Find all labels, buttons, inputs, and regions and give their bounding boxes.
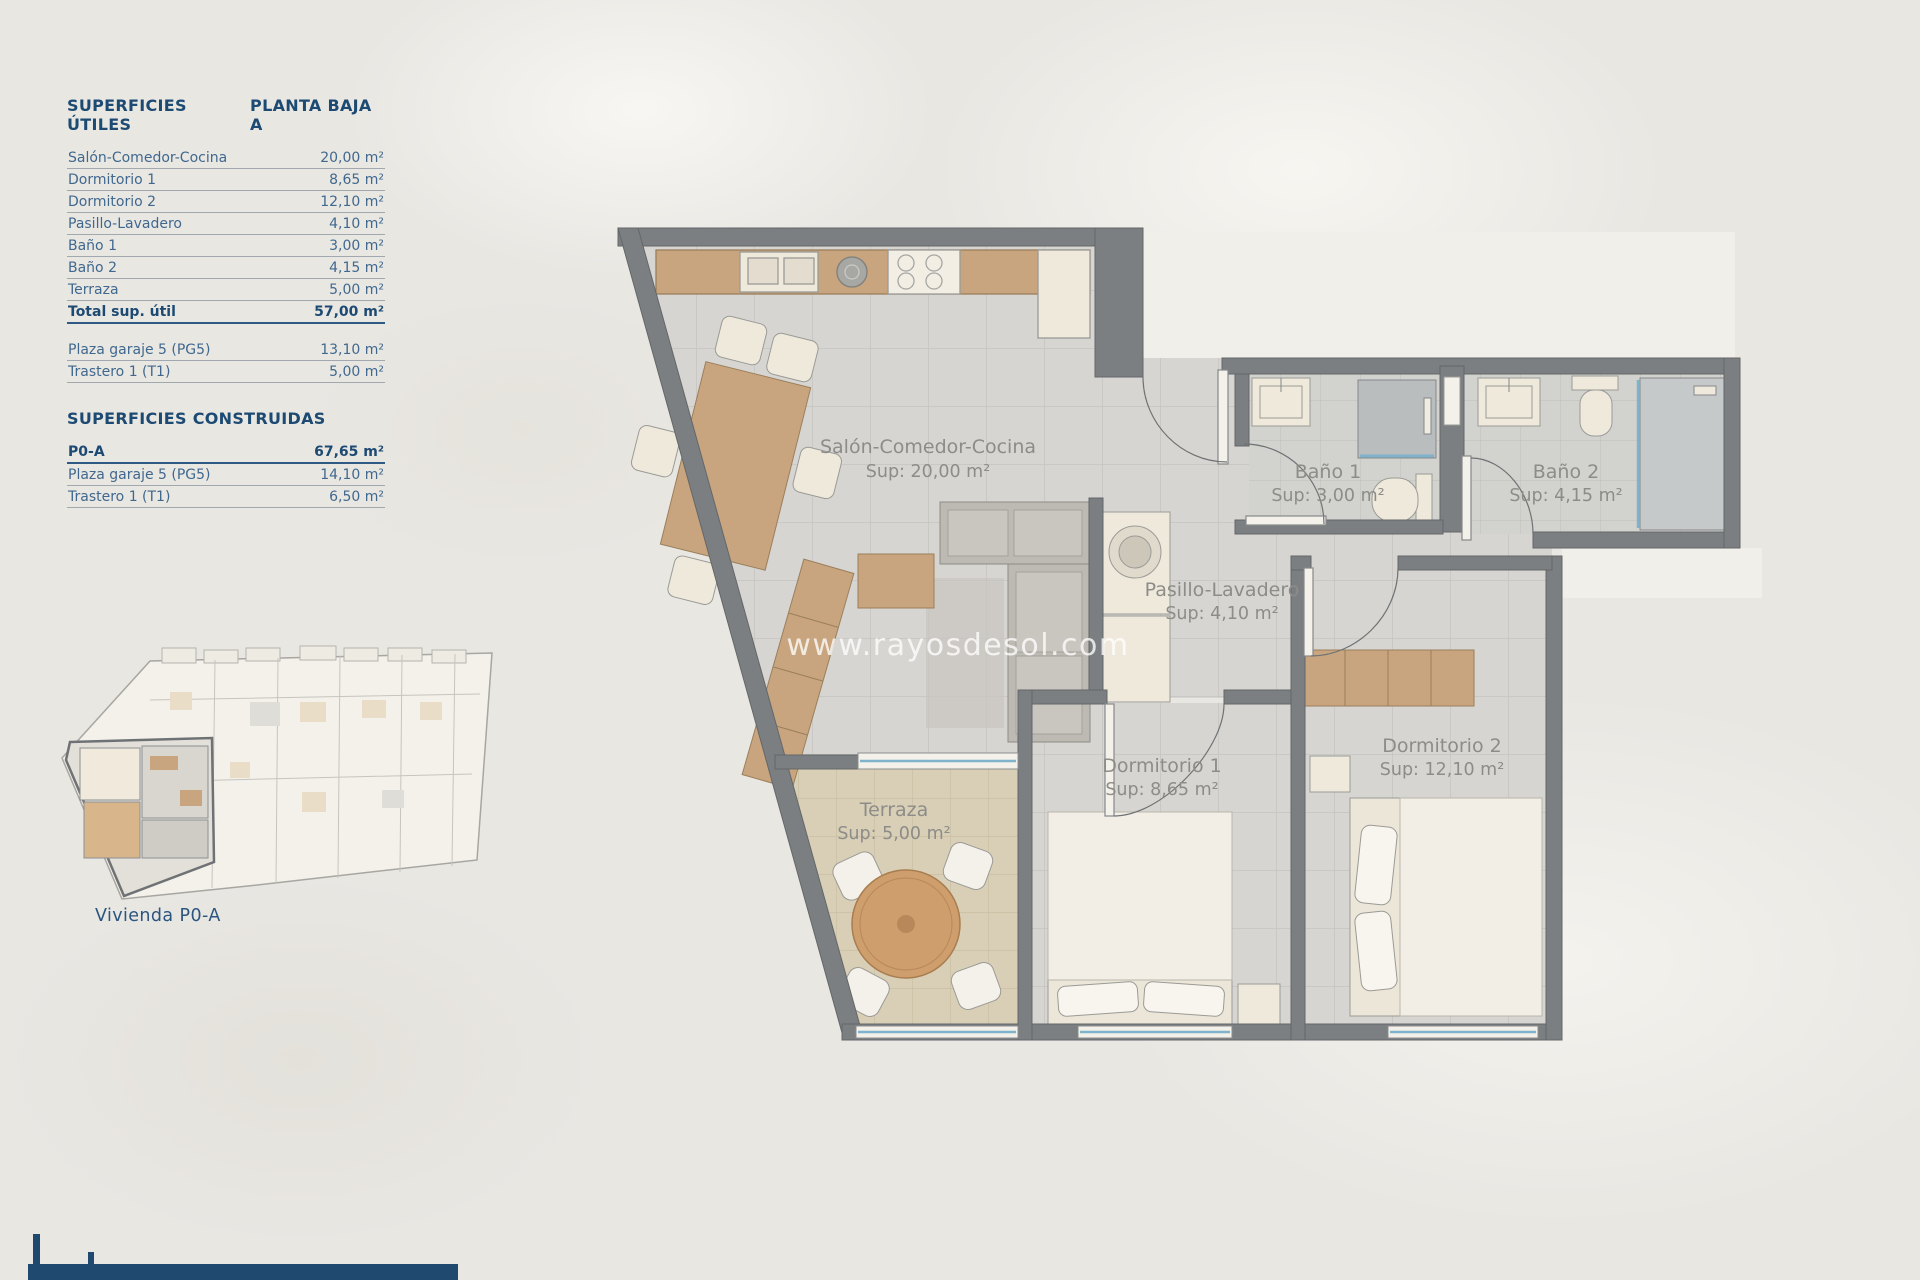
- row-value: 12,10 m²: [320, 194, 384, 210]
- total-row: Total sup. útil 57,00 m²: [67, 301, 385, 324]
- label-dorm1: Dormitorio 1: [1102, 755, 1221, 777]
- nightstand: [1238, 984, 1280, 1024]
- burner-icon: [837, 257, 867, 287]
- row-label: P0-A: [68, 444, 105, 460]
- label-salon-area: Sup: 20,00 m²: [866, 462, 991, 482]
- dorm2-door-leaf: [1304, 568, 1313, 656]
- mini-plan: [62, 646, 492, 899]
- label-bano2: Baño 2: [1533, 461, 1599, 483]
- mini-balconies: [162, 646, 466, 663]
- label-terraza: Terraza: [859, 799, 929, 821]
- total-value: 57,00 m²: [314, 304, 384, 320]
- coffee-table: [858, 554, 934, 608]
- row-value: 4,15 m²: [329, 260, 384, 276]
- surface-row: Baño 1 3,00 m²: [67, 235, 385, 257]
- logo-bar: [28, 1234, 458, 1280]
- label-terraza-area: Sup: 5,00 m²: [837, 824, 950, 844]
- row-value: 3,00 m²: [329, 238, 384, 254]
- entrance-door-leaf: [1218, 370, 1228, 464]
- row-label: Plaza garaje 5 (PG5): [68, 467, 211, 483]
- pillow: [1057, 981, 1139, 1017]
- row-label: Dormitorio 2: [68, 194, 156, 210]
- row-value: 5,00 m²: [329, 364, 384, 380]
- pillow: [1354, 910, 1398, 991]
- watermark: www.rayosdesol.com: [786, 628, 1129, 663]
- row-label: Trastero 1 (T1): [68, 364, 170, 380]
- label-salon: Salón-Comedor-Cocina: [820, 436, 1036, 458]
- floor-name: PLANTA BAJA A: [250, 96, 385, 134]
- row-value: 13,10 m²: [320, 342, 384, 358]
- bath2-door-leaf: [1462, 456, 1471, 540]
- total-label: Total sup. útil: [68, 304, 176, 320]
- label-dorm1-area: Sup: 8,65 m²: [1105, 780, 1218, 800]
- surface-row: Dormitorio 2 12,10 m²: [67, 191, 385, 213]
- shower-icon: [1358, 380, 1436, 458]
- pillow: [1143, 981, 1225, 1017]
- row-value: 20,00 m²: [320, 150, 384, 166]
- label-pasillo: Pasillo-Lavadero: [1145, 579, 1300, 601]
- shower-tray-icon: [1638, 378, 1728, 530]
- bath1-door-leaf: [1246, 516, 1326, 525]
- row-value: 5,00 m²: [329, 282, 384, 298]
- page: { "surfaces_utiles": { "title": "SUPERFI…: [0, 0, 1920, 1280]
- row-value: 67,65 m²: [314, 444, 384, 460]
- fridge: [1038, 250, 1090, 338]
- hob-icon: [888, 250, 960, 294]
- surface-row: Salón-Comedor-Cocina 20,00 m²: [67, 147, 385, 169]
- label-bano1: Baño 1: [1295, 461, 1361, 483]
- row-label: Salón-Comedor-Cocina: [68, 150, 227, 166]
- row-label: Plaza garaje 5 (PG5): [68, 342, 211, 358]
- row-label: Trastero 1 (T1): [68, 489, 170, 505]
- row-label: Pasillo-Lavadero: [68, 216, 182, 232]
- construida-row: Trastero 1 (T1) 6,50 m²: [67, 486, 385, 508]
- row-label: Baño 1: [68, 238, 117, 254]
- surfaces-panel: SUPERFICIES ÚTILES PLANTA BAJA A Salón-C…: [67, 96, 385, 508]
- surfaces-utiles-title: SUPERFICIES ÚTILES: [67, 96, 250, 134]
- construida-row: Plaza garaje 5 (PG5) 14,10 m²: [67, 464, 385, 486]
- washer-icon: [1100, 512, 1170, 702]
- label-dorm2: Dormitorio 2: [1382, 735, 1501, 757]
- nightstand: [1310, 756, 1350, 792]
- row-value: 8,65 m²: [329, 172, 384, 188]
- extra-row: Trastero 1 (T1) 5,00 m²: [67, 361, 385, 383]
- surfaces-utiles-header: SUPERFICIES ÚTILES PLANTA BAJA A: [67, 96, 385, 134]
- kitchen-sink: [740, 252, 818, 292]
- row-label: Baño 2: [68, 260, 117, 276]
- label-bano2-area: Sup: 4,15 m²: [1509, 486, 1622, 506]
- surface-row: Dormitorio 1 8,65 m²: [67, 169, 385, 191]
- mini-plan-caption: Vivienda P0-A: [95, 906, 221, 926]
- surfaces-construidas-title: SUPERFICIES CONSTRUIDAS: [67, 409, 385, 428]
- surface-row: Baño 2 4,15 m²: [67, 257, 385, 279]
- label-bano1-area: Sup: 3,00 m²: [1271, 486, 1384, 506]
- chair: [630, 424, 682, 479]
- row-value: 6,50 m²: [329, 489, 384, 505]
- row-value: 14,10 m²: [320, 467, 384, 483]
- construida-row-main: P0-A 67,65 m²: [67, 441, 385, 464]
- row-label: Dormitorio 1: [68, 172, 156, 188]
- pillow: [1354, 824, 1398, 905]
- label-pasillo-area: Sup: 4,10 m²: [1165, 604, 1278, 624]
- label-dorm2-area: Sup: 12,10 m²: [1380, 760, 1505, 780]
- extra-row: Plaza garaje 5 (PG5) 13,10 m²: [67, 339, 385, 361]
- row-value: 4,10 m²: [329, 216, 384, 232]
- row-label: Terraza: [68, 282, 119, 298]
- surface-row: Terraza 5,00 m²: [67, 279, 385, 301]
- surface-row: Pasillo-Lavadero 4,10 m²: [67, 213, 385, 235]
